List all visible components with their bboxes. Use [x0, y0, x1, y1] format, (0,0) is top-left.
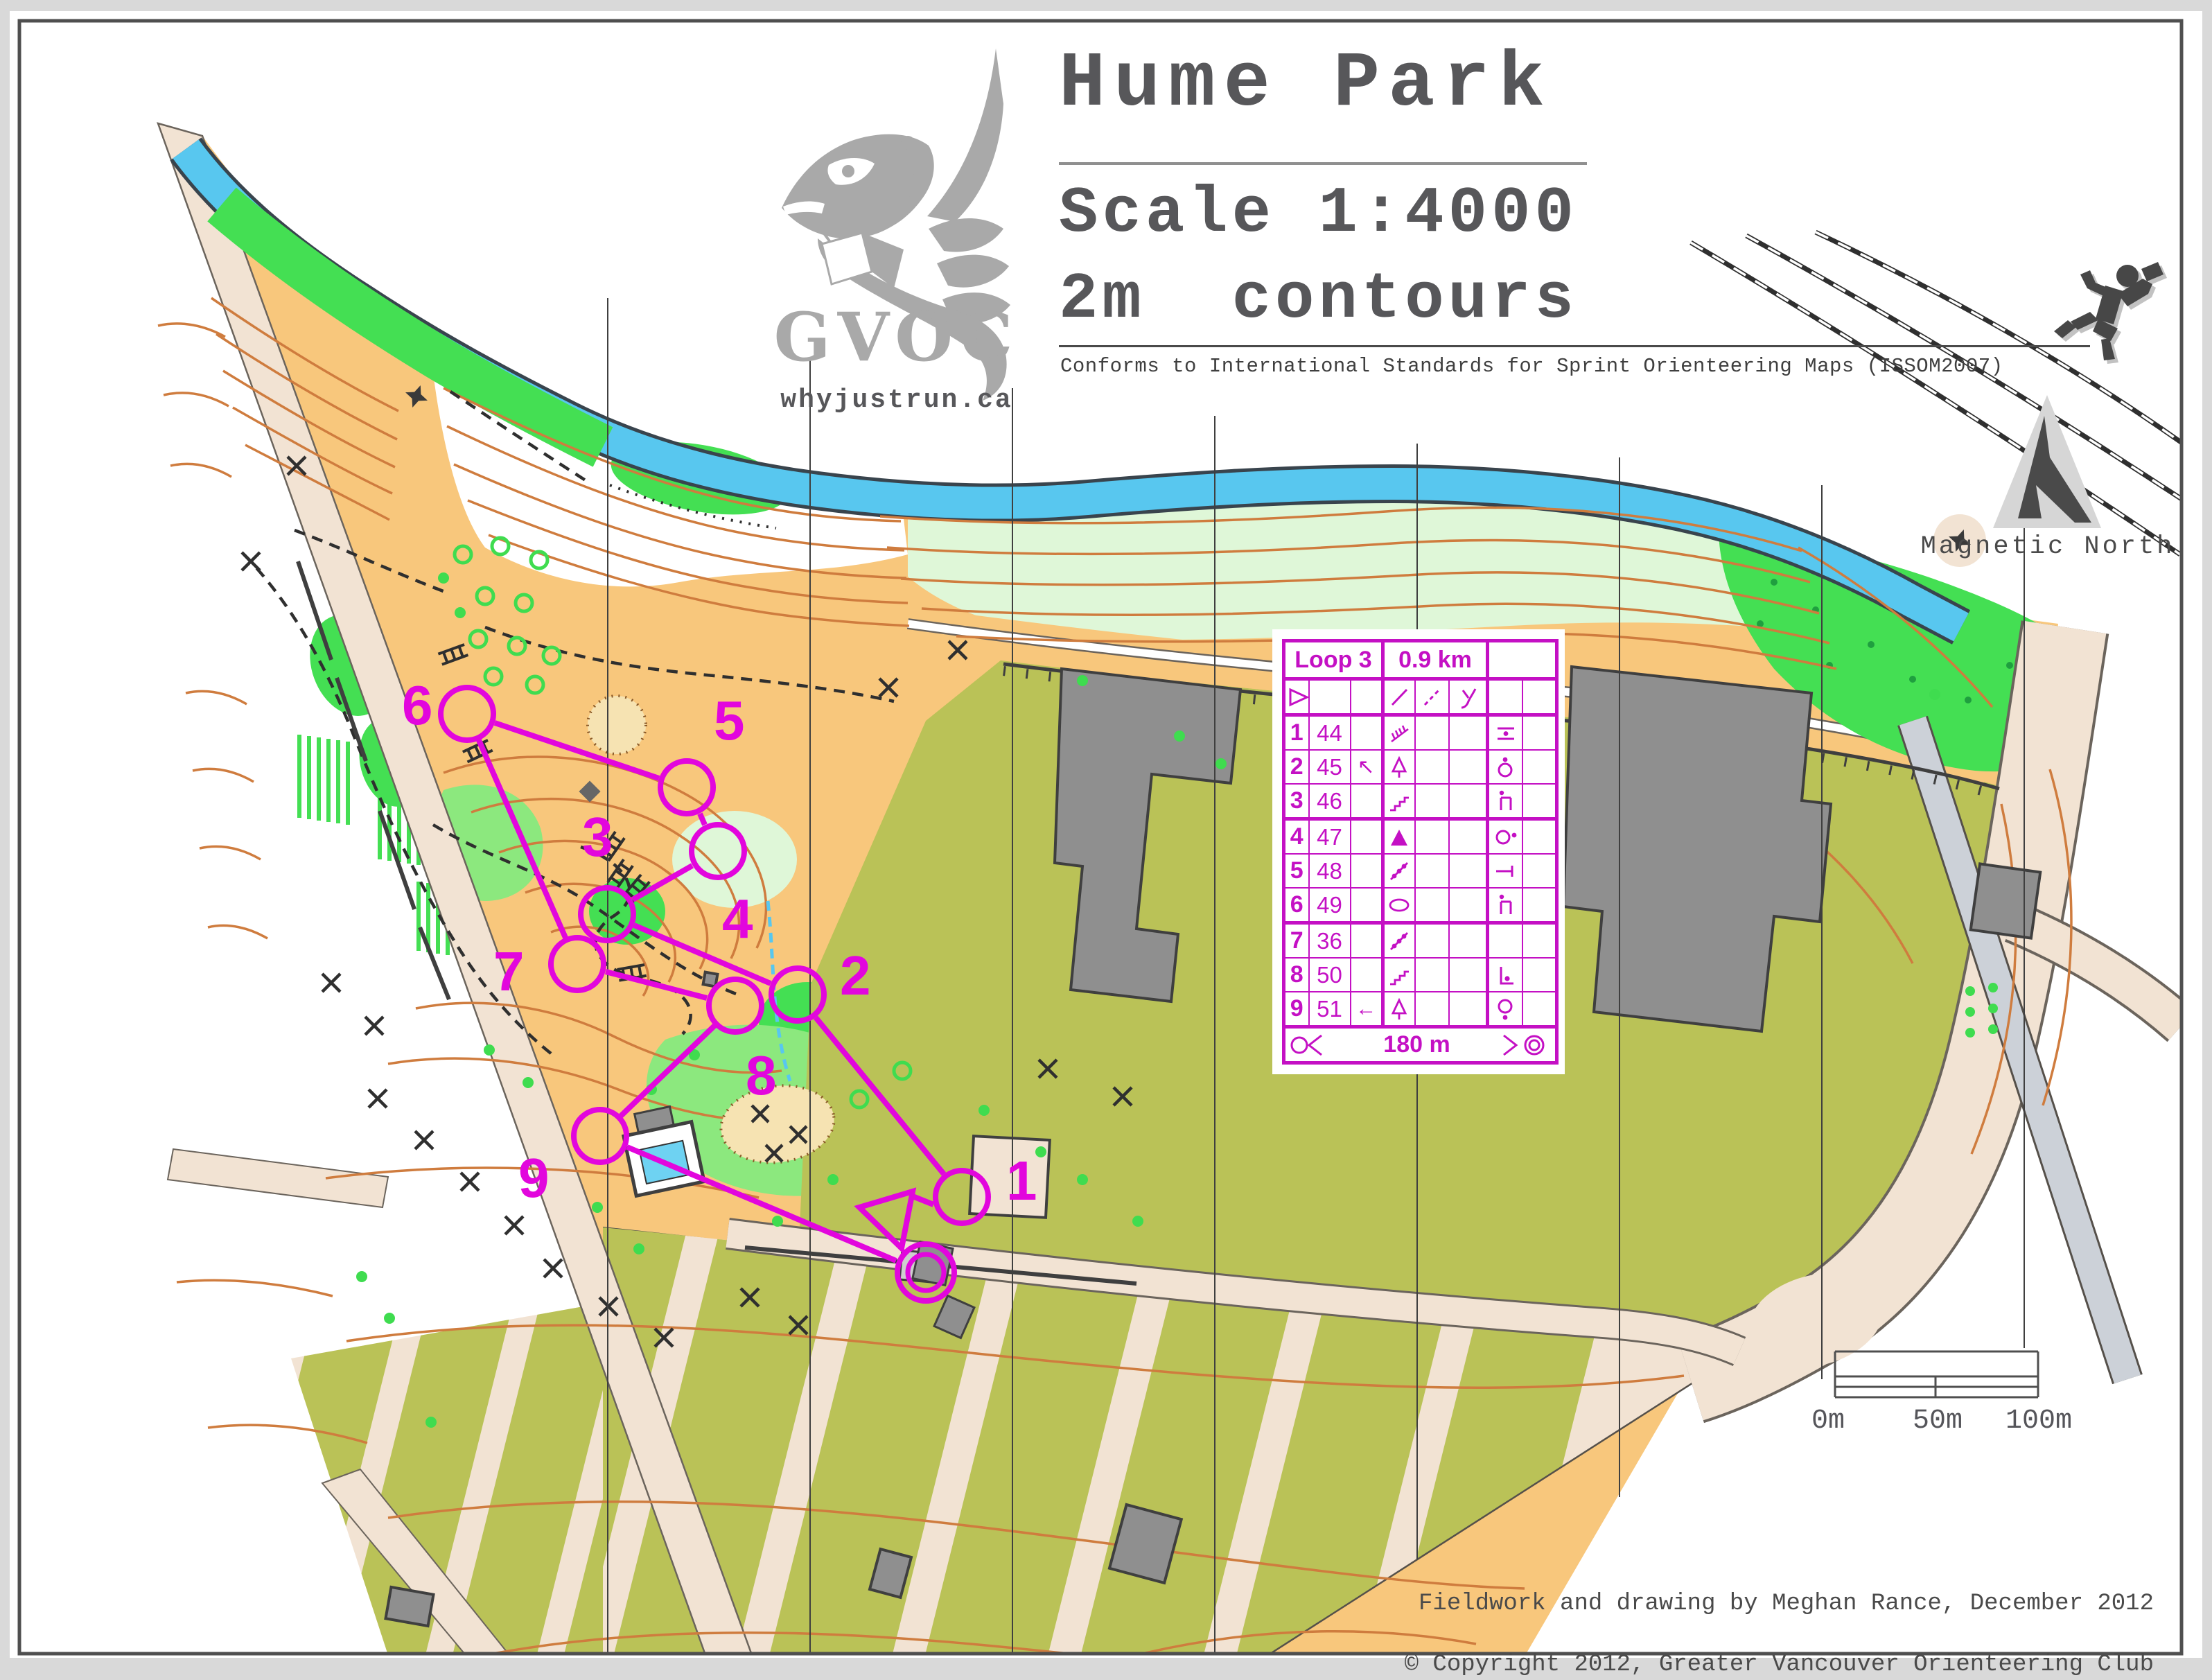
course-length: 0.9 km	[1383, 641, 1488, 679]
club-acronym: GVOC	[772, 298, 1021, 376]
circle-dot-below-icon	[1488, 992, 1522, 1027]
page: { "header": { "title": "Hume Park", "sca…	[0, 0, 2212, 1668]
beaded-line-icon	[1383, 923, 1415, 959]
standards-note: Conforms to International Standards for …	[1060, 355, 2003, 378]
credits-line1: Fieldwork and drawing by Meghan Rance, D…	[1419, 1591, 2154, 1617]
start-symbol-row	[1284, 679, 1557, 715]
playground-circle	[588, 696, 646, 754]
control-number-9: 9	[518, 1150, 550, 1206]
title-underline	[1059, 162, 1587, 165]
beaded-line-icon	[1383, 854, 1415, 888]
card-header-row: Loop 3 0.9 km	[1284, 641, 1557, 679]
header-divider	[1059, 345, 2090, 347]
credits: Fieldwork and drawing by Meghan Rance, D…	[1386, 1589, 2154, 1680]
control-row: 3 46	[1284, 784, 1557, 819]
scale-bar-label-100: 100m	[1983, 1406, 2094, 1437]
page-title: Hume Park	[1059, 40, 1553, 128]
control-row: 4 47	[1284, 819, 1557, 855]
control-number-4: 4	[722, 891, 753, 947]
knoll-icon	[1383, 819, 1415, 855]
map-start-glyph	[1290, 1031, 1334, 1059]
circle-dot-above-icon	[1488, 750, 1522, 784]
slash-icon	[1383, 679, 1415, 715]
control-number-3: 3	[582, 810, 613, 865]
between-lines-dot-icon	[1488, 715, 1522, 751]
staircase-icon	[1383, 958, 1415, 992]
credits-line2: © Copyright 2012, Greater Vancouver Orie…	[1405, 1652, 2154, 1678]
control-row: 9 51 ←	[1284, 992, 1557, 1027]
control-row: 1 44	[1284, 715, 1557, 751]
circle-dot-right-icon	[1488, 819, 1522, 855]
north-triangle-icon	[1993, 395, 2101, 528]
gate-dot-above-icon	[1488, 888, 1522, 923]
corner-dot-icon	[1488, 958, 1522, 992]
earth-bank-icon	[1383, 715, 1415, 751]
contour-interval: 2m contours	[1059, 263, 1578, 337]
control-number-1: 1	[1006, 1153, 1037, 1209]
scale-bar-label-50: 50m	[1889, 1406, 1986, 1437]
control-row: 8 50	[1284, 958, 1557, 992]
control-number-5: 5	[714, 693, 745, 749]
control-description-table: Loop 3 0.9 km 1 44 2 45 ↖	[1282, 639, 1559, 1065]
control-number-8: 8	[746, 1048, 777, 1103]
control-number-6: 6	[402, 678, 433, 733]
line-end-tick-icon	[1488, 854, 1522, 888]
magnetic-north-label: Magnetic North	[1920, 532, 2176, 561]
gate-dot-above-icon	[1488, 784, 1522, 819]
lone-tree-icon	[1383, 750, 1415, 784]
control-number-7: 7	[493, 944, 525, 999]
dashed-slash-icon	[1415, 679, 1449, 715]
scale-bar-label-0: 0m	[1811, 1406, 1845, 1437]
oval-icon	[1383, 888, 1415, 923]
control-row: 5 48	[1284, 854, 1557, 888]
club-website: whyjustrun.ca	[772, 385, 1021, 415]
control-row: 6 49	[1284, 888, 1557, 923]
staircase-icon	[1383, 784, 1415, 819]
control-description-card: Loop 3 0.9 km 1 44 2 45 ↖	[1272, 629, 1565, 1074]
railway	[1691, 232, 2183, 554]
course-name: Loop 3	[1284, 641, 1383, 679]
control-row: 7 36	[1284, 923, 1557, 959]
control-number-2: 2	[840, 948, 871, 1004]
control-row: 2 45 ↖	[1284, 750, 1557, 784]
lone-tree-icon	[1383, 992, 1415, 1027]
map-finish-glyph	[1500, 1031, 1551, 1059]
map-scale: Scale 1:4000	[1059, 177, 1578, 251]
final-leg-distance: 180 m	[1383, 1031, 1450, 1058]
fork-icon	[1449, 679, 1488, 715]
card-footer-row: 180 m	[1284, 1027, 1557, 1063]
start-triangle-icon	[1284, 679, 1309, 715]
